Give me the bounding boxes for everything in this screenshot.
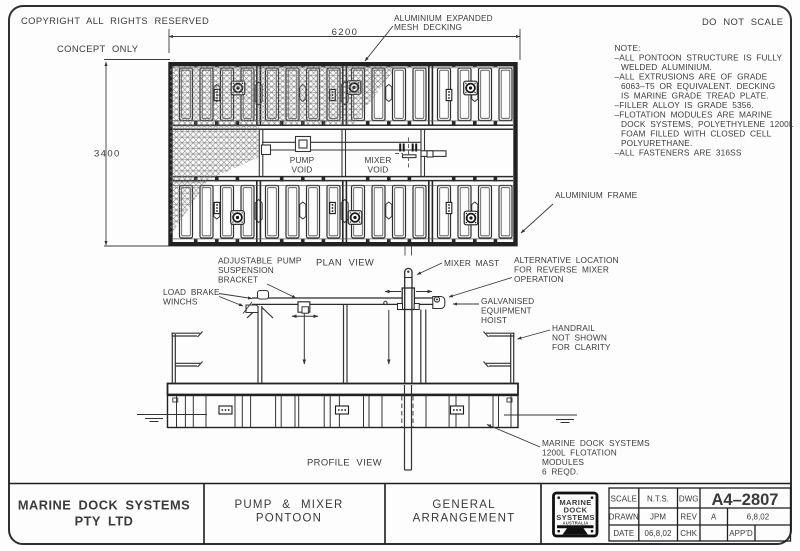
svg-text:CONCEPT ONLY: CONCEPT ONLY <box>57 43 139 54</box>
svg-text:ALTERNATIVE LOCATION: ALTERNATIVE LOCATION <box>514 255 619 265</box>
svg-text:FOAM FILLED WITH CLOSED CE: FOAM FILLED WITH CLOSED CELL <box>621 129 772 139</box>
svg-text:PLAN VIEW: PLAN VIEW <box>316 257 374 268</box>
svg-text:ARRANGEMENT: ARRANGEMENT <box>413 513 516 525</box>
svg-text:SCALE: SCALE <box>611 495 637 504</box>
svg-text:IS MARINE GRADE TREAD PLAT: IS MARINE GRADE TREAD PLATE. <box>621 91 769 101</box>
svg-text:MARINE DOCK SYSTEMS: MARINE DOCK SYSTEMS <box>18 498 190 513</box>
svg-text:DO NOT SCALE: DO NOT SCALE <box>702 16 783 27</box>
svg-text:HOIST: HOIST <box>481 315 507 325</box>
svg-text:N.T.S.: N.T.S. <box>647 495 669 504</box>
svg-text:ALUMINIUM FRAME: ALUMINIUM FRAME <box>555 190 638 200</box>
svg-text:6 REQD.: 6 REQD. <box>542 467 578 477</box>
svg-text:DRAWN: DRAWN <box>609 513 639 522</box>
svg-text:PROFILE VIEW: PROFILE VIEW <box>307 457 382 468</box>
svg-text:06,8,02: 06,8,02 <box>644 529 671 538</box>
svg-text:NOT SHOWN: NOT SHOWN <box>552 333 607 343</box>
svg-text:SUSPENSION: SUSPENSION <box>218 265 274 275</box>
svg-text:POLYURETHANE.: POLYURETHANE. <box>621 138 692 148</box>
svg-text:NOTE:: NOTE: <box>615 43 641 53</box>
svg-text:–ALL EXTRUSIONS ARE OF GRA: –ALL EXTRUSIONS ARE OF GRADE <box>615 72 768 82</box>
svg-text:PTY LTD: PTY LTD <box>75 514 134 529</box>
svg-text:REV: REV <box>680 513 697 522</box>
svg-text:FOR REVERSE MIXER: FOR REVERSE MIXER <box>514 265 609 275</box>
svg-text:DATE: DATE <box>613 529 634 538</box>
svg-text:BRACKET: BRACKET <box>218 275 258 285</box>
svg-text:COPYRIGHT ALL RIGHTS RESERV: COPYRIGHT ALL RIGHTS RESERVED <box>21 15 209 26</box>
svg-text:PUMP & MIXER: PUMP & MIXER <box>235 499 344 511</box>
svg-text:EQUIPMENT: EQUIPMENT <box>481 306 532 316</box>
svg-text:CHK: CHK <box>680 529 698 538</box>
svg-text:–FILLER ALLOY IS GRADE 535: –FILLER ALLOY IS GRADE 5356. <box>615 100 754 110</box>
svg-text:WELDED ALUMINIUM.: WELDED ALUMINIUM. <box>621 62 712 72</box>
svg-text:ADJUSTABLE PUMP: ADJUSTABLE PUMP <box>218 256 302 266</box>
svg-text:DWG: DWG <box>679 495 699 504</box>
svg-text:WINCHS: WINCHS <box>163 297 198 307</box>
svg-text:PONTOON: PONTOON <box>256 513 322 525</box>
svg-text:6063–T5 OR EQUIVALENT. DECK: 6063–T5 OR EQUIVALENT. DECKING <box>621 81 775 91</box>
svg-text:3400: 3400 <box>94 149 121 160</box>
svg-text:–ALL PONTOON STRUCTURE IS: –ALL PONTOON STRUCTURE IS FULLY <box>615 53 783 63</box>
svg-text:1200L FLOTATION: 1200L FLOTATION <box>542 448 617 458</box>
svg-text:MIXER: MIXER <box>364 155 391 165</box>
svg-text:–FLOTATION MODULES ARE MARI: –FLOTATION MODULES ARE MARINE <box>615 110 773 120</box>
svg-text:VOID: VOID <box>368 165 389 175</box>
svg-text:LOAD BRAKE: LOAD BRAKE <box>163 287 220 297</box>
svg-text:FOR CLARITY: FOR CLARITY <box>552 342 611 352</box>
svg-text:GENERAL: GENERAL <box>432 499 495 511</box>
svg-text:PUMP: PUMP <box>290 155 315 165</box>
svg-text:MARINE DOCK SYSTEMS: MARINE DOCK SYSTEMS <box>542 438 650 448</box>
svg-text:MIXER MAST: MIXER MAST <box>444 258 499 268</box>
svg-text:MESH DECKING: MESH DECKING <box>394 22 462 32</box>
svg-text:AUSTRALIA: AUSTRALIA <box>563 521 589 526</box>
svg-text:HANDRAIL: HANDRAIL <box>552 323 595 333</box>
svg-text:DOCK SYSTEMS, POLYETHYLENE: DOCK SYSTEMS, POLYETHYLENE 1200L <box>621 119 794 129</box>
svg-text:OPERATION: OPERATION <box>514 274 564 284</box>
svg-text:APP'D: APP'D <box>729 529 753 538</box>
svg-text:–ALL FASTENERS ARE 316SS: –ALL FASTENERS ARE 316SS <box>615 148 742 158</box>
svg-text:JPM: JPM <box>650 513 666 522</box>
svg-text:MODULES: MODULES <box>542 457 584 467</box>
svg-text:6200: 6200 <box>332 27 359 38</box>
svg-text:A4–2807: A4–2807 <box>712 491 779 509</box>
svg-text:VOID: VOID <box>292 165 313 175</box>
svg-text:6,8,02: 6,8,02 <box>747 513 770 522</box>
svg-text:GALVANISED: GALVANISED <box>481 296 534 306</box>
svg-text:A: A <box>711 513 717 522</box>
